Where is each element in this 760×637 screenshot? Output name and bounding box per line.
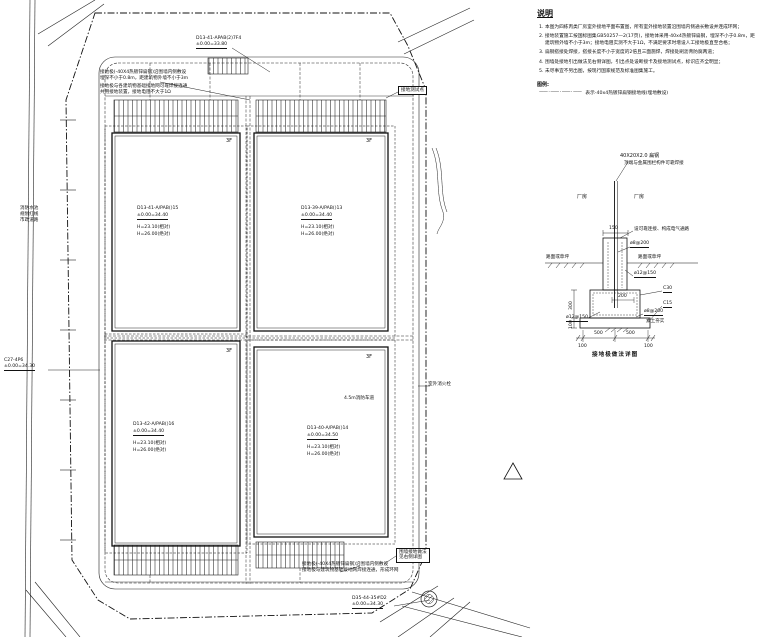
building-2-label: D13-39-A/PAB()13 ±0.00=34.40 H=23.10(相对)… [301,206,342,239]
legend-row: —— · —— · —— · —— 表示-40x4热镀锌扁钢接地线(埋地敷设) [539,90,757,96]
detail-rebar-top: ø8@200 [630,241,649,248]
annotation-corner-box: 围墙接地做法 见右侧详图 [396,548,430,563]
building-3-elev: ±0.00=34.40 [133,429,164,437]
notes-list: 本图为四栋丙类厂房室外接地平面布置图，所有室外接地装置沿围墙内侧通长敷设并连成环… [535,25,757,76]
detail-c30: C30 [663,286,672,293]
detail-rebar-bottom-right: ø8@200 [644,309,663,316]
building-1-elev: ±0.00=34.40 [137,213,168,221]
detail-dim-100-b: 100 [644,344,653,350]
detail-rebar-mid: ø12@150 [634,271,656,278]
building-1-h-rel: H=23.10(相对) [137,225,178,232]
notes-panel: 说明 本图为四栋丙类厂房室外接地平面布置图，所有室外接地装置沿围墙内侧通长敷设并… [535,8,757,96]
building-1-h-abs: H=26.00(绝对) [137,232,178,239]
annotation-top-1b: 埋深不小于0.8m，距建筑物外墙不小于3m [100,76,188,82]
building-2-floors: 3F [366,138,372,145]
callout-left: C27-4P6 ±0.00=34.30 [4,358,35,371]
note-item: 未尽事宜不另出图，按现行国家规范及标准图集施工。 [545,69,757,76]
building-2-id: D13-39-A/PAB()13 [301,206,342,213]
building-4-h-rel: H=23.10(相对) [307,445,348,452]
callout-top-elev: ±0.00=33.80 [196,42,227,49]
detail-dim-100-a: 100 [578,344,587,350]
building-3-label: D13-42-A/PAB()16 ±0.00=34.40 H=23.10(相对)… [133,422,174,455]
building-4-label: D13-40-A/PAB()14 ±0.00=34.50 H=23.10(相对)… [307,426,348,459]
callout-bottom: D35-44-35#D2 ±0.00=34.30 [352,596,387,609]
detail-dim-200: 200 [618,294,627,300]
legend-label: 表示-40x4热镀锌扁钢接地线(埋地敷设) [585,90,668,96]
revision-triangle [504,463,522,479]
detail-c15: C15 [663,301,672,308]
detail-pole-spec: 40X20X2.0 扁钢 [620,153,659,160]
note-item: 本图为四栋丙类厂房室外接地平面布置图，所有室外接地装置沿围墙内侧通长敷设并连成环… [545,25,757,32]
detail-ground-right: 路面或草坪 [638,255,661,261]
building-3-h-abs: H=26.00(绝对) [133,448,174,455]
callout-top: D13-41-APAB(2)7F4 ±0.00=33.80 [196,36,241,49]
building-4-floors: 3F [366,354,372,361]
building-3-id: D13-42-A/PAB()16 [133,422,174,429]
note-item: 扁钢搭接处焊接，搭接长度不小于宽度的2倍且三面施焊，焊接处刷沥青防腐两道； [545,50,757,57]
detail-room-left: 厂房 [577,194,587,201]
building-2-h-abs: H=26.00(绝对) [301,232,342,239]
building-4-elev: ±0.00=34.50 [307,433,338,441]
building-3-outline [105,334,247,553]
detail-pole-note: 顶端与金属围栏构件可靠焊接 [624,161,684,167]
detail-dim-300: 300 [569,301,575,310]
annotation-bottom-1b: 接地极与建筑物基础接地网焊接连通，形成环网 [302,568,398,574]
detail-dim-500-b: 500 [626,331,635,337]
detail-soil-label: 素土夯实 [646,319,664,325]
fire-lane-label: 4.5m消防车道 [344,396,374,402]
detail-dim-150: 150 [609,226,618,232]
ground-line-symbol: —— · —— · —— · —— [539,90,581,95]
building-1-floors: 3F [226,138,232,145]
drawing-canvas: D13-41-APAB(2)7F4 ±0.00=33.80 C27-4P6 ±0… [0,0,760,637]
building-1-label: D13-41-A/PAB()15 ±0.00=34.40 H=23.10(相对)… [137,206,178,239]
perimeter-fence [99,57,419,589]
detail-caption: 接地极做法详图 [592,352,638,359]
detail-dim-500-a: 500 [594,331,603,337]
detail-room-right: 厂房 [634,194,644,201]
note-item: 接地装置施工按国标图集GB50257—2(17页)，接地体采用-40x4热镀锌扁… [545,34,757,48]
detail-ground-left: 路面或草坪 [546,255,569,261]
building-2-h-rel: H=23.10(相对) [301,225,342,232]
detail-conn-note: 设可靠连接、构成电气通路 [634,227,689,233]
building-4-h-abs: H=26.00(绝对) [307,452,348,459]
hydrant-label: 室外消火栓 [428,382,451,388]
left-label-3: 市政道路 [20,218,38,224]
building-2-elev: ±0.00=34.40 [301,213,332,221]
callout-bottom-elev: ±0.00=34.30 [352,602,383,609]
legend-title: 图例: [537,81,757,88]
detail-dim-100-left: 100 [569,320,575,329]
notes-title: 说明 [537,8,757,19]
building-3-floors: 3F [226,348,232,355]
annotation-corner-2: 见右侧详图 [399,555,427,561]
building-3-h-rel: H=23.10(相对) [133,441,174,448]
note-item: 围墙处接地引出做法见右侧详图，引出点处设断接卡及接地测试点，标识应齐全明显； [545,60,757,67]
test-point-box: 接地测试点 [398,86,427,95]
callout-left-elev: ±0.00=34.30 [4,364,35,371]
building-1-id: D13-41-A/PAB()15 [137,206,178,213]
annotation-top-2b: 共用接地装置，接地电阻不大于1Ω [100,90,171,96]
building-4-id: D13-40-A/PAB()14 [307,426,348,433]
